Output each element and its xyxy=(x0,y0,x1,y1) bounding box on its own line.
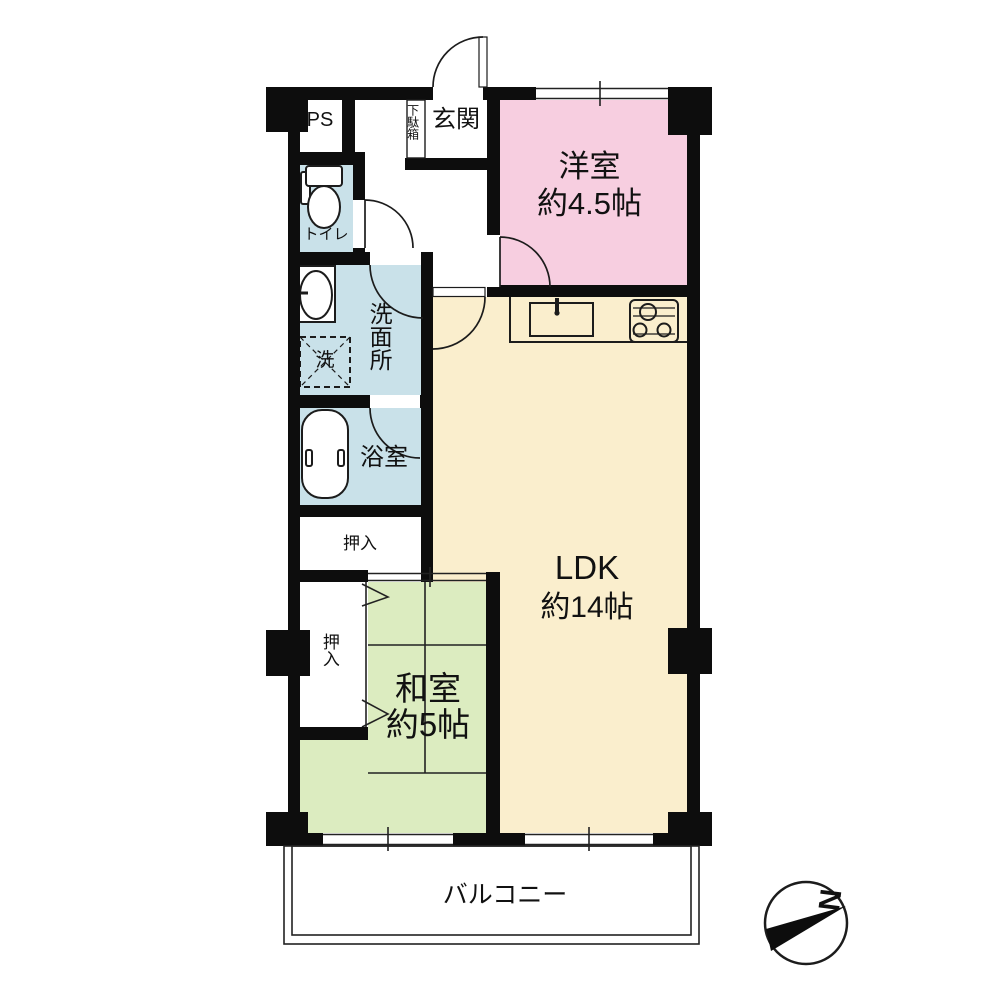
ldk-size: 約14帖 xyxy=(487,592,687,624)
pillar xyxy=(266,630,310,676)
washroom-label: 洗面所 xyxy=(367,302,391,384)
entrance-door xyxy=(433,37,487,87)
shoe-cabinet-label: 下駄箱 xyxy=(406,104,419,156)
western-room-size: 約4.5帖 xyxy=(492,188,687,221)
floor-plan-drawing xyxy=(0,0,1000,1000)
entrance-label: 玄関 xyxy=(425,107,487,132)
pillar xyxy=(668,812,712,846)
pillar xyxy=(668,87,712,135)
toilet-label: トイレ xyxy=(298,227,354,243)
bathtub-icon xyxy=(302,410,348,498)
floor-plan: PS 下駄箱 玄関 洋室 約4.5帖 トイレ 洗面所 洗 浴室 押入 押入 LD… xyxy=(0,0,1000,1000)
japanese-room-label: 和室 xyxy=(328,672,528,707)
toilet-door xyxy=(365,200,413,248)
pillar xyxy=(266,812,308,846)
washer-space-label: 洗 xyxy=(306,351,344,371)
north-label: N xyxy=(812,887,846,912)
balcony-label: バルコニー xyxy=(400,882,610,908)
japanese-room-size: 約5帖 xyxy=(328,708,528,743)
closet-top-label: 押入 xyxy=(331,535,389,553)
ldk-label: LDK xyxy=(487,551,687,586)
pillar xyxy=(668,628,712,674)
pipe-space-label: PS xyxy=(298,110,342,131)
western-room-label: 洋室 xyxy=(492,151,687,184)
washbasin-icon xyxy=(297,266,335,322)
bathroom-label: 浴室 xyxy=(354,445,414,470)
